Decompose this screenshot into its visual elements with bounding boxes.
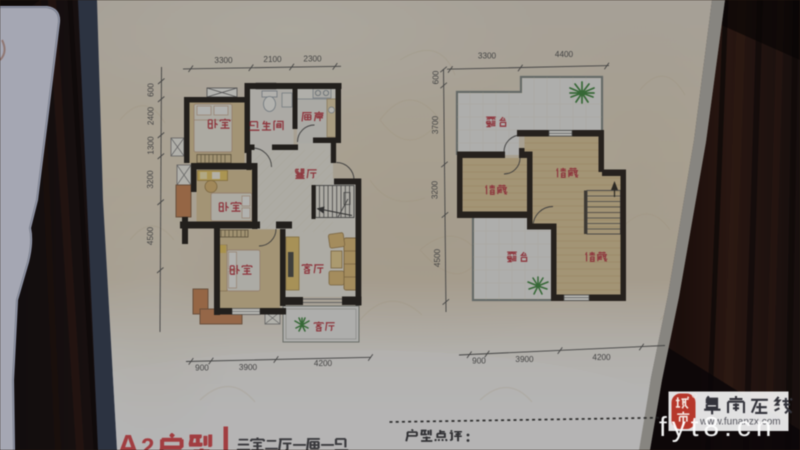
svg-text:fyt8.cn: fyt8.cn [659, 411, 776, 442]
